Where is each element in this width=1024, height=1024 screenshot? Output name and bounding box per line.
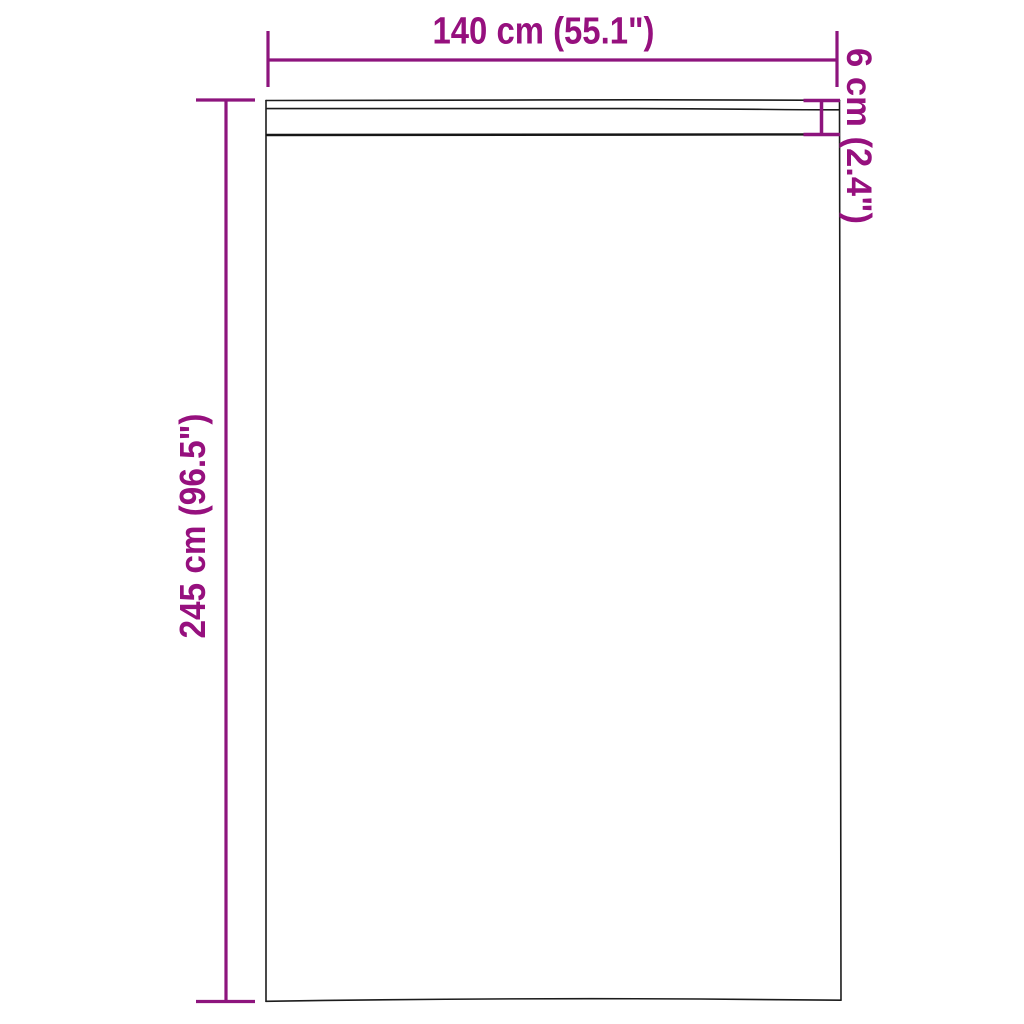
svg-text:245 cm (96.5"): 245 cm (96.5") (172, 414, 213, 639)
svg-text:140 cm (55.1"): 140 cm (55.1") (433, 11, 655, 53)
svg-text:6 cm (2.4"): 6 cm (2.4") (839, 48, 879, 224)
